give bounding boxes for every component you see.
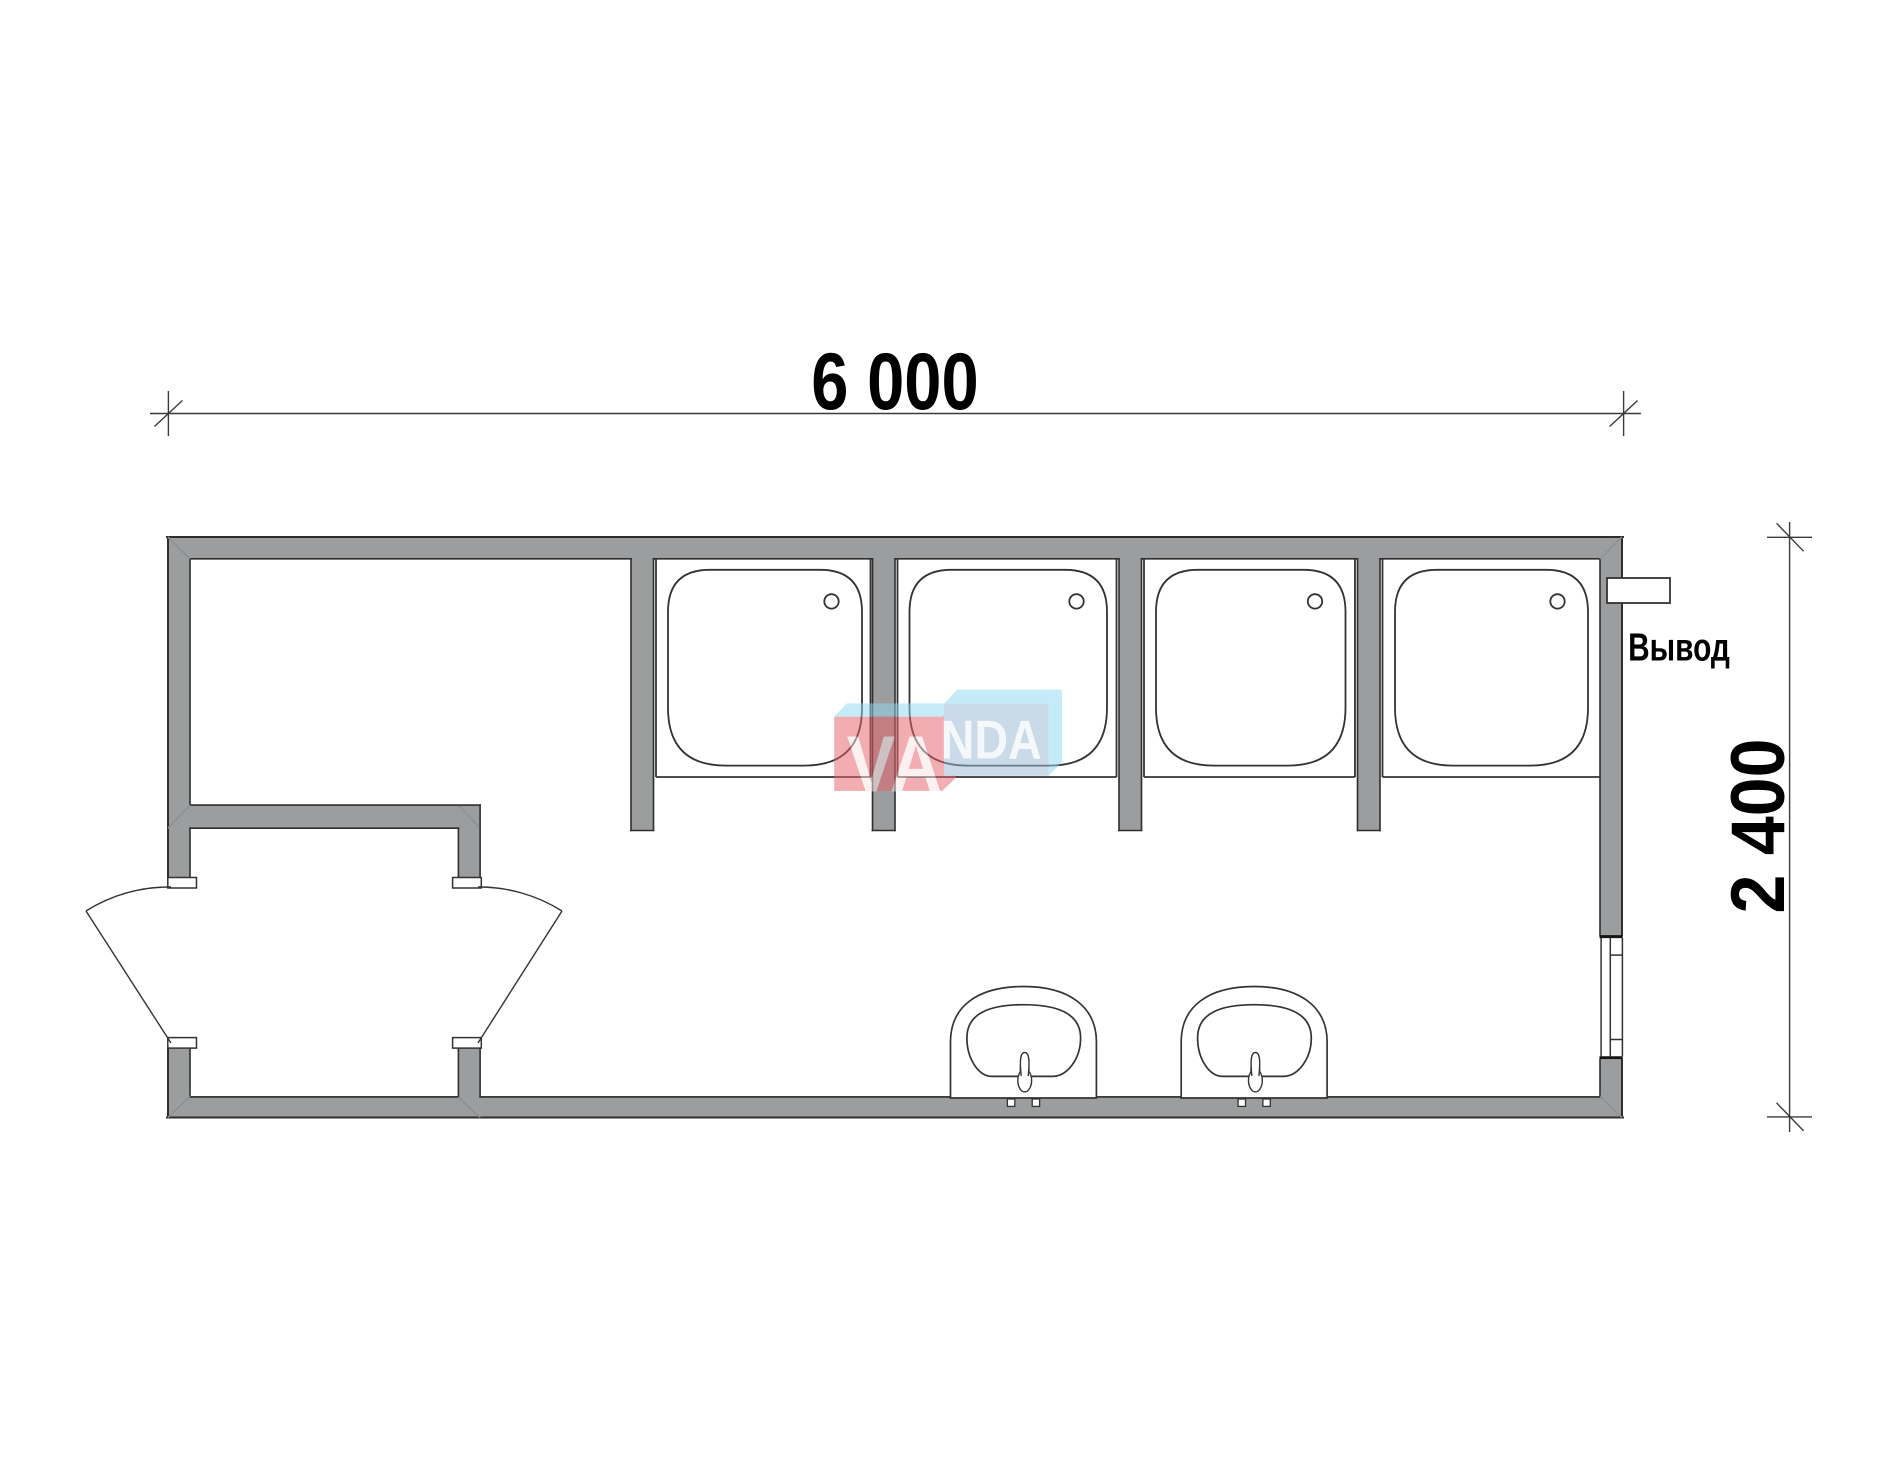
svg-text:2 400: 2 400 — [1716, 739, 1800, 914]
svg-text:NDA: NDA — [941, 709, 1042, 770]
svg-text:6 000: 6 000 — [811, 336, 978, 426]
svg-text:VA: VA — [847, 720, 942, 809]
svg-text:Вывод: Вывод — [1628, 627, 1730, 669]
